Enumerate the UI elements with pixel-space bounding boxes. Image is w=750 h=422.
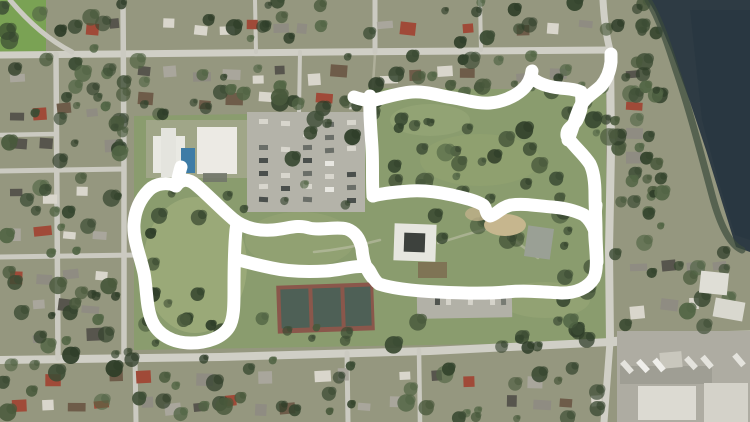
road-west-road-1 [56, 54, 58, 358]
community-building-east [197, 127, 237, 174]
house-roof [86, 108, 98, 117]
house-roof [629, 305, 645, 319]
house-roof [10, 113, 24, 121]
house-roof [163, 18, 174, 28]
house-roof [258, 371, 272, 384]
house-roof [507, 395, 517, 407]
house-roof [437, 66, 453, 77]
house-roof [463, 376, 474, 387]
house-roof [547, 23, 559, 35]
house-roof [559, 398, 572, 407]
house-roof [247, 20, 258, 30]
warehouse-1 [638, 386, 696, 420]
house-roof [314, 370, 331, 382]
tennis-court-3 [344, 287, 371, 327]
house-roof [399, 372, 410, 380]
pavilion-core [404, 233, 426, 253]
house-roof [660, 298, 678, 311]
park-shelter [524, 225, 554, 259]
house-roof [630, 264, 647, 272]
house-roof [533, 400, 551, 411]
house-roof [626, 152, 642, 164]
tennis-court-2 [312, 288, 341, 328]
warehouse-2 [704, 383, 748, 422]
road-east-road [609, 50, 611, 342]
house-roof [194, 25, 208, 36]
house-roof [273, 23, 289, 33]
house-roof [81, 305, 99, 314]
house-roof [377, 21, 393, 30]
house-roof [626, 128, 643, 139]
house-roof [10, 189, 22, 196]
satellite-map-view [0, 0, 750, 422]
house-roof [275, 66, 285, 75]
house-roof [462, 23, 473, 33]
house-roof [399, 21, 416, 35]
house-roof [68, 403, 86, 412]
house-white-1 [699, 271, 729, 296]
road-west-road-2 [123, 0, 124, 358]
road-left-cross-2 [0, 169, 124, 171]
house-roof [460, 68, 475, 78]
house-roof [76, 187, 87, 196]
house-roof [253, 75, 264, 83]
house-roof [163, 65, 177, 77]
road-left-cross-3 [0, 255, 140, 257]
house-roof [33, 299, 45, 309]
house-roof [255, 404, 267, 416]
house-roof [308, 73, 321, 86]
satellite-image [0, 0, 750, 422]
tennis-court-1 [280, 289, 309, 329]
house-roof [92, 231, 106, 240]
house-roof [63, 231, 76, 239]
house-roof [136, 370, 151, 383]
house-roof [358, 403, 371, 411]
house-roof [42, 400, 54, 411]
house-roof [296, 23, 307, 34]
route-west-link [370, 96, 373, 196]
house-roof [626, 102, 643, 111]
house-roof [579, 20, 593, 28]
building-awning [203, 173, 227, 182]
industrial-shadow [620, 366, 712, 384]
house-roof [39, 138, 53, 149]
picnic-structure [418, 262, 447, 278]
house-roof [330, 64, 348, 77]
house-roof [33, 225, 52, 236]
